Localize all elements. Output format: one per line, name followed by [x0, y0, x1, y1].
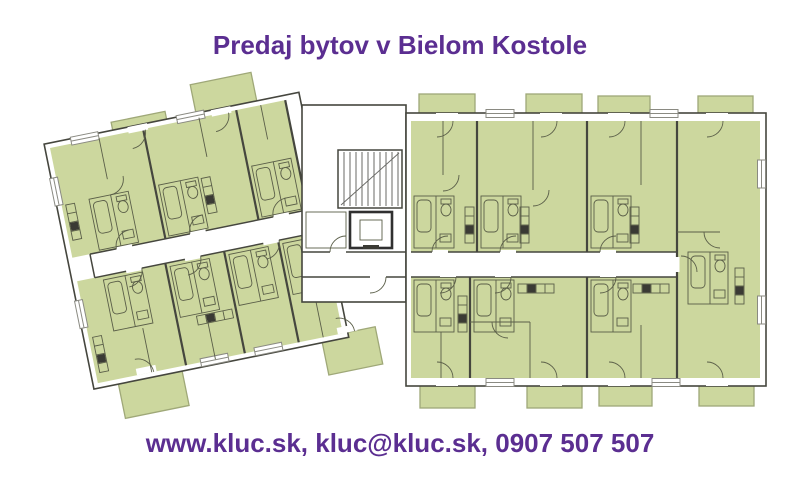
- balcony: [420, 384, 475, 408]
- window: [486, 379, 514, 387]
- floor-plan: [0, 0, 800, 489]
- flyer-page: { "title": { "text": "Predaj bytov v Bie…: [0, 0, 800, 489]
- window: [652, 379, 680, 387]
- window: [650, 110, 678, 118]
- stair-core-slab: [302, 105, 406, 302]
- balcony: [699, 384, 754, 406]
- window: [758, 296, 766, 324]
- elevator: [350, 212, 392, 249]
- stair-core: [302, 105, 406, 302]
- balcony: [599, 384, 652, 406]
- window: [486, 110, 514, 118]
- window: [758, 160, 766, 188]
- apartment-area: [677, 121, 760, 378]
- right-wing: [406, 94, 766, 408]
- balcony: [527, 384, 582, 408]
- contact-line: www.kluc.sk, kluc@kluc.sk, 0907 507 507: [0, 429, 800, 458]
